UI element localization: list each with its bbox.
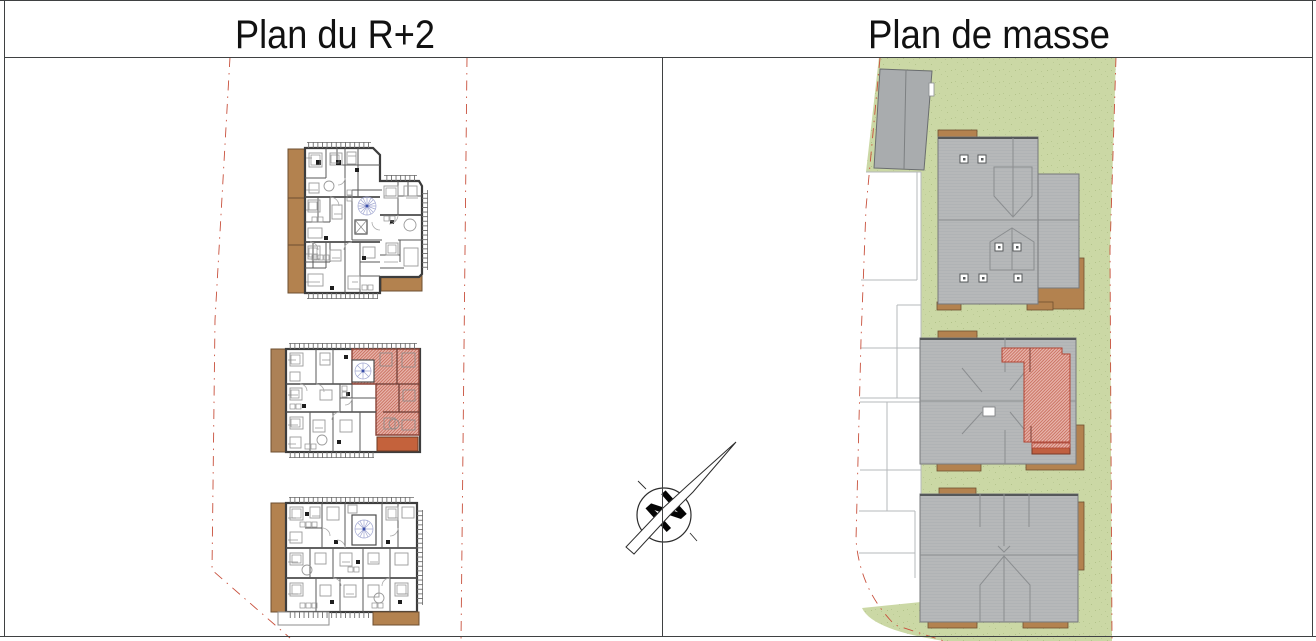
svg-text:Plan de masse: Plan de masse [868, 13, 1110, 57]
svg-text:Plan du R+2: Plan du R+2 [235, 13, 435, 57]
